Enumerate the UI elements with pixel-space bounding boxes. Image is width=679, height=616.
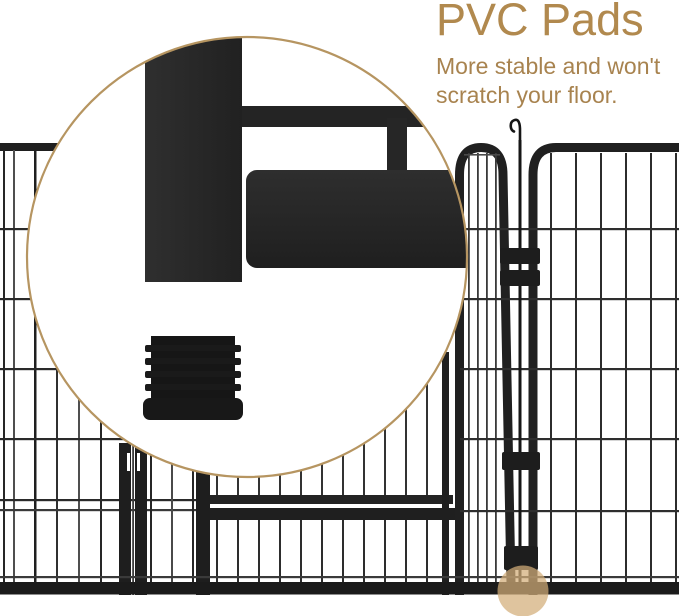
- fence-hinge-posts: [119, 443, 147, 595]
- gate-bottom-bar: [205, 495, 453, 504]
- pvc-pad-cap: [143, 398, 243, 420]
- magnified-vertical-tube: [145, 26, 242, 282]
- magnified-link: [387, 118, 407, 178]
- feature-caption: PVC Pads More stable and won't scratch y…: [436, 0, 679, 110]
- highlight-dot: [498, 566, 549, 616]
- arch-door-right: [533, 148, 679, 596]
- pin-rod: [519, 140, 522, 592]
- bottom-rail: [0, 582, 679, 595]
- feature-title: PVC Pads: [436, 0, 679, 44]
- gate-post: [196, 460, 210, 595]
- doorway-post: [442, 352, 449, 595]
- pvc-pad-plug: [143, 336, 243, 420]
- product-feature-image: PVC Pads More stable and won't scratch y…: [0, 0, 679, 616]
- feature-subtitle-line1: More stable and won't: [436, 52, 679, 81]
- fence-arch-panels: [460, 148, 679, 596]
- magnified-horizontal-tube: [246, 170, 482, 268]
- back-floor-wire: [0, 576, 679, 578]
- magnifier-circle: [27, 26, 482, 477]
- feature-subtitle-line2: scratch your floor.: [436, 81, 679, 110]
- back-bottom-rail: [203, 508, 455, 520]
- arch-door-left: [460, 148, 512, 596]
